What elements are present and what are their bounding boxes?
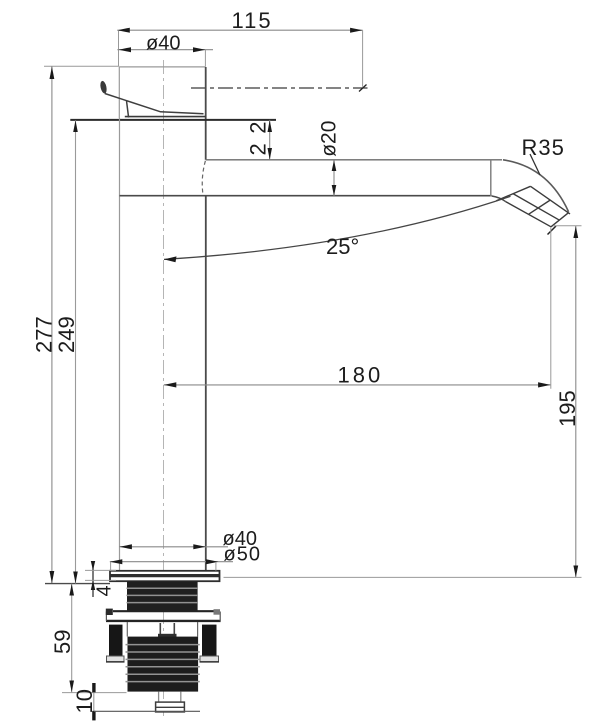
- svg-text:ø40: ø40: [146, 32, 180, 54]
- svg-text:10: 10: [72, 689, 97, 713]
- svg-text:4: 4: [94, 585, 116, 596]
- svg-text:180: 180: [338, 362, 384, 387]
- svg-text:ø50: ø50: [224, 543, 261, 565]
- svg-text:195: 195: [555, 390, 580, 427]
- svg-text:249: 249: [54, 316, 79, 353]
- svg-text:59: 59: [50, 630, 75, 654]
- svg-text:115: 115: [232, 8, 273, 33]
- svg-text:277: 277: [31, 316, 56, 353]
- svg-text:25°: 25°: [326, 234, 359, 259]
- svg-text:22: 22: [245, 112, 270, 155]
- svg-text:R35: R35: [522, 135, 565, 160]
- svg-text:ø20: ø20: [317, 121, 340, 157]
